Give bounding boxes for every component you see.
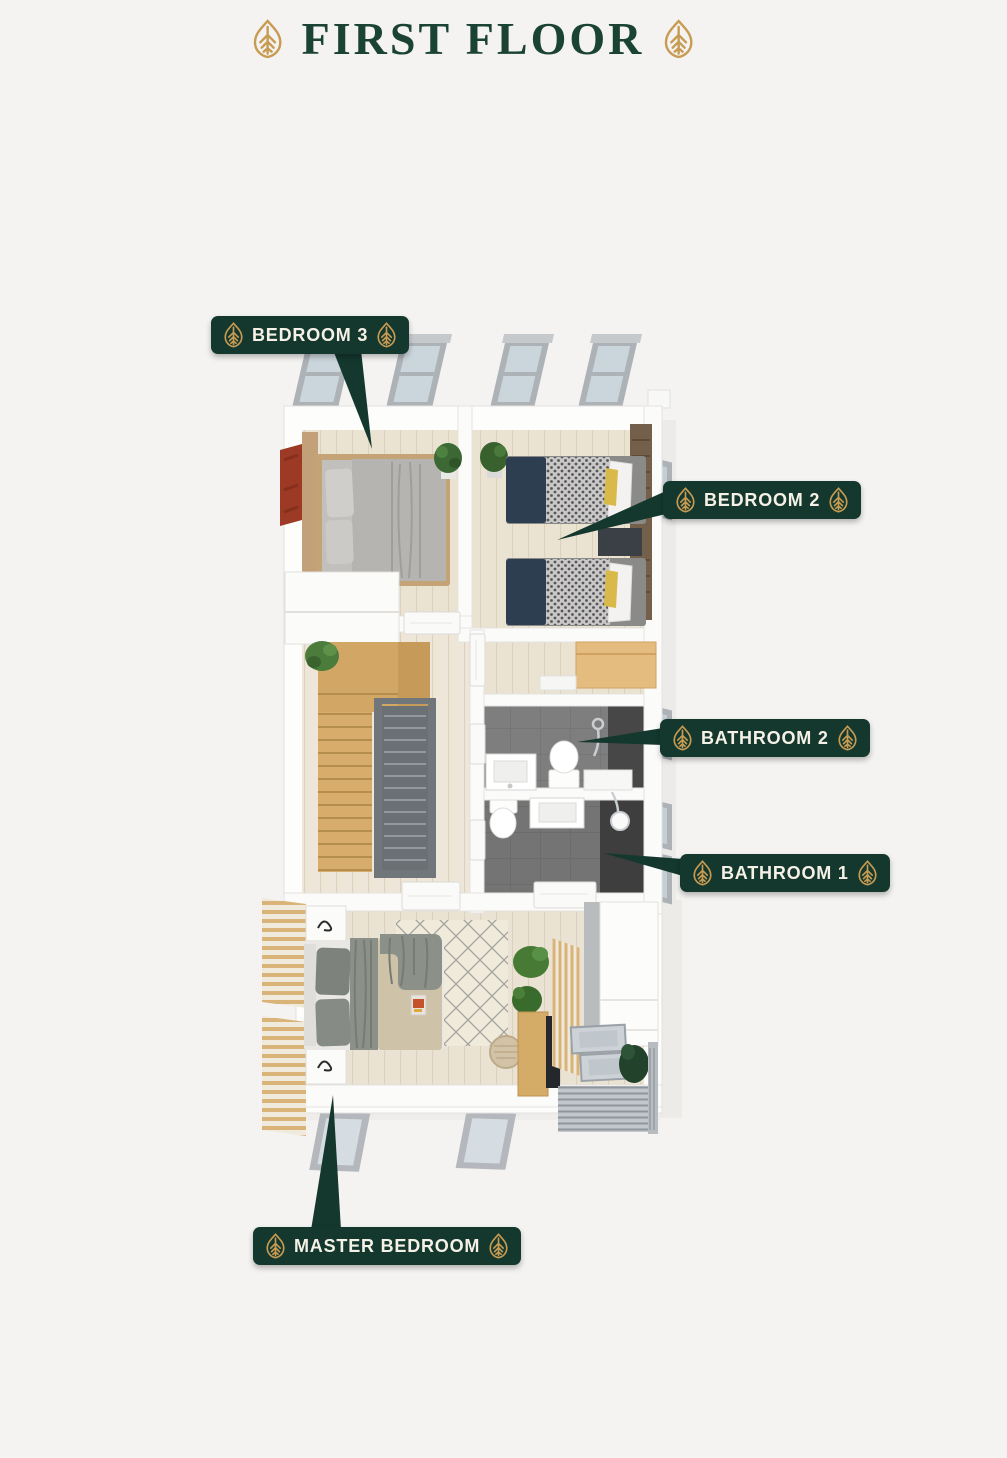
- leaf-icon: [857, 860, 878, 886]
- twin-bed-2: [506, 558, 646, 626]
- label-text: MASTER BEDROOM: [294, 1236, 480, 1257]
- door: [470, 724, 485, 764]
- shower-ledge: [584, 770, 632, 790]
- dresser: [285, 572, 399, 644]
- toilet: [549, 741, 579, 788]
- plant: [305, 641, 339, 671]
- stair-steps: [318, 712, 372, 872]
- leaf-icon: [837, 725, 858, 751]
- label-bedroom-3: BEDROOM 3: [211, 316, 409, 354]
- leaf-icon: [252, 19, 284, 59]
- slat-screen: [262, 898, 306, 1008]
- tv-console: [518, 1012, 548, 1096]
- staircase: [305, 641, 436, 878]
- magazine: [411, 995, 426, 1015]
- leaf-icon: [376, 322, 397, 348]
- label-text: BEDROOM 2: [704, 490, 820, 511]
- accent-wall: [302, 432, 318, 582]
- master-bed: [304, 934, 444, 1050]
- label-bathroom-1: BATHROOM 1: [680, 854, 890, 892]
- round-chair: [490, 1036, 522, 1068]
- label-text: BATHROOM 2: [701, 728, 829, 749]
- slat-screen: [262, 1016, 306, 1136]
- door: [470, 820, 485, 860]
- leaf-icon: [488, 1233, 509, 1259]
- leaf-icon: [265, 1233, 286, 1259]
- leaf-icon: [692, 860, 713, 886]
- label-bedroom-2: BEDROOM 2: [663, 481, 861, 519]
- leaf-icon: [223, 322, 244, 348]
- label-bathroom-2: BATHROOM 2: [660, 719, 870, 757]
- leaf-icon: [672, 725, 693, 751]
- page-header: FIRST FLOOR: [252, 12, 695, 65]
- page-title: FIRST FLOOR: [302, 12, 645, 65]
- desk: [598, 528, 642, 556]
- wardrobe: [600, 902, 658, 1046]
- leaf-icon: [675, 487, 696, 513]
- label-text: BEDROOM 3: [252, 325, 368, 346]
- toilet: [490, 800, 517, 838]
- door: [470, 634, 485, 686]
- nightstand: [306, 1046, 346, 1084]
- label-master-bedroom: MASTER BEDROOM: [253, 1227, 521, 1265]
- leaf-icon: [662, 19, 694, 59]
- leaf-icon: [828, 487, 849, 513]
- double-bed: [316, 454, 450, 586]
- nightstand: [306, 906, 346, 944]
- vanity-sink: [486, 754, 536, 790]
- vanity-sink: [530, 798, 584, 828]
- label-text: BATHROOM 1: [721, 863, 849, 884]
- first-floor-plan-page: { "header": { "title": "FIRST FLOOR" }, …: [0, 0, 1007, 1458]
